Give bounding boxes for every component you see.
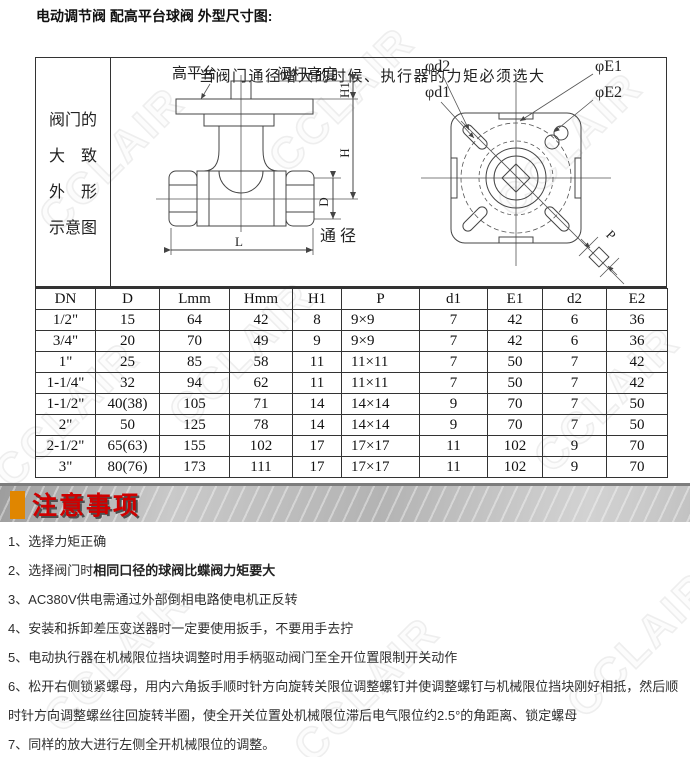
dimension-L-label: L (235, 234, 243, 249)
table-cell: 17×17 (342, 436, 420, 457)
table-cell: 49 (230, 331, 293, 352)
note-number: 5、 (8, 650, 28, 665)
table-cell: 11 (420, 436, 488, 457)
table-cell: 85 (160, 352, 230, 373)
dimension-table: DNDLmmHmmH1Pd1E1d2E2 1/2"15644289×974263… (35, 288, 668, 478)
table-cell: 32 (96, 373, 160, 394)
table-cell: 7 (543, 373, 607, 394)
table-cell: 11 (293, 373, 342, 394)
table-cell: 20 (96, 331, 160, 352)
column-header: Hmm (230, 289, 293, 310)
table-cell: 42 (607, 373, 668, 394)
note-number: 7、 (8, 737, 28, 752)
note-item: 4、安装和拆卸差压变送器时一定要使用扳手，不要用手去拧 (8, 614, 686, 643)
dimension-D-label: D (316, 197, 331, 206)
slot-hole (543, 205, 571, 233)
table-cell: 11×11 (342, 352, 420, 373)
table-cell: 70 (607, 436, 668, 457)
valve-line-art: D L H1 H (111, 58, 666, 286)
table-cell: 2" (36, 415, 96, 436)
table-cell: 14 (293, 415, 342, 436)
drawing-side-caption-line: 示意图 (36, 214, 110, 238)
table-cell: 6 (543, 310, 607, 331)
column-header: E1 (488, 289, 543, 310)
table-cell: 50 (488, 373, 543, 394)
table-row: 2-1/2"65(63)1551021717×1711102970 (36, 436, 668, 457)
table-cell: 7 (543, 352, 607, 373)
table-header-row: DNDLmmHmmH1Pd1E1d2E2 (36, 289, 668, 310)
table-row: 1"2585581111×11750742 (36, 352, 668, 373)
table-cell: 1/2" (36, 310, 96, 331)
table-cell: 7 (420, 373, 488, 394)
table-cell: 50 (96, 415, 160, 436)
column-header: P (342, 289, 420, 310)
note-number: 6、 (8, 679, 28, 694)
drawing-canvas: 当阀门通径增大的时候、执行器的力矩必须选大 (111, 58, 666, 286)
notes-list: 1、选择力矩正确2、选择阀门时相同口径的球阀比蝶阀力矩要大3、AC380V供电需… (8, 527, 686, 757)
slot-hole (461, 123, 489, 151)
table-cell: 102 (488, 457, 543, 478)
drawing-side-caption: 阀门的大 致外 形示意图 (36, 58, 111, 286)
dimension-H1-label: H1 (337, 82, 352, 98)
high-platform-label: 高平台 (172, 62, 217, 83)
table-cell: 9 (420, 394, 488, 415)
stem-height-label: 阀杆高度 (277, 63, 337, 84)
note-text: 选择力矩正确 (28, 534, 106, 549)
note-number: 3、 (8, 592, 28, 607)
table-cell: 14 (293, 394, 342, 415)
phi-E1-label: φE1 (595, 58, 622, 76)
table-cell: 50 (488, 352, 543, 373)
table-cell: 2-1/2" (36, 436, 96, 457)
table-cell: 70 (488, 415, 543, 436)
table-cell: 9 (543, 457, 607, 478)
phi-E2-label: φE2 (595, 84, 622, 102)
P-arrow (608, 266, 617, 275)
phi-d1-leader (441, 102, 474, 138)
table-cell: 173 (160, 457, 230, 478)
table-cell: 70 (160, 331, 230, 352)
bore-label: 通径 (320, 222, 360, 246)
column-header: d2 (543, 289, 607, 310)
table-cell: 78 (230, 415, 293, 436)
drawing-side-caption-line: 大 致 (36, 142, 110, 166)
P-arrow (581, 239, 590, 248)
table-cell: 36 (607, 331, 668, 352)
table-cell: 50 (607, 394, 668, 415)
table-cell: 70 (488, 394, 543, 415)
table-cell: 7 (420, 331, 488, 352)
bolt-hole-d1 (554, 126, 568, 140)
phi-d1-label: φd1 (425, 84, 450, 102)
note-text: AC380V供电需通过外部倒相电路使电机正反转 (28, 592, 297, 607)
table-cell: 64 (160, 310, 230, 331)
table-cell: 102 (488, 436, 543, 457)
note-item: 7、同样的放大进行左侧全开机械限位的调整。 (8, 730, 686, 757)
note-number: 2、 (8, 563, 28, 578)
note-text: 安装和拆卸差压变送器时一定要使用扳手，不要用手去拧 (28, 621, 353, 636)
table-cell: 3/4" (36, 331, 96, 352)
table-cell: 7 (420, 352, 488, 373)
phi-d2-label: φd2 (425, 58, 450, 76)
mounting-bracket (204, 114, 274, 126)
table-cell: 42 (230, 310, 293, 331)
column-header: D (96, 289, 160, 310)
table-row: 1-1/4"3294621111×11750742 (36, 373, 668, 394)
table-cell: 62 (230, 373, 293, 394)
note-number: 4、 (8, 621, 28, 636)
slot-hole (461, 205, 489, 233)
column-header: H1 (293, 289, 342, 310)
table-cell: 125 (160, 415, 230, 436)
left-hex-cap (169, 171, 197, 226)
table-cell: 105 (160, 394, 230, 415)
note-item: 5、电动执行器在机械限位挡块调整时用手柄驱动阀门至全开位置限制开关动作 (8, 643, 686, 672)
table-cell: 14×14 (342, 394, 420, 415)
table-cell: 9 (420, 415, 488, 436)
column-header: d1 (420, 289, 488, 310)
document-page: CCLAIRCCLAIRCCLAIRCCLAIRCCLAIRCCLAIRCCLA… (0, 0, 690, 757)
dimension-H-label: H (337, 148, 352, 157)
table-cell: 58 (230, 352, 293, 373)
table-cell: 7 (420, 310, 488, 331)
table-cell: 15 (96, 310, 160, 331)
high-platform-plate (176, 99, 313, 114)
table-cell: 11×11 (342, 373, 420, 394)
table-cell: 11 (420, 457, 488, 478)
valve-top-view: P (421, 73, 624, 284)
table-cell: 71 (230, 394, 293, 415)
table-cell: 1-1/2" (36, 394, 96, 415)
table-cell: 42 (607, 352, 668, 373)
table-cell: 1" (36, 352, 96, 373)
table-cell: 42 (488, 310, 543, 331)
note-item: 2、选择阀门时相同口径的球阀比蝶阀力矩要大 (8, 556, 686, 585)
table-row: 3"80(76)1731111717×1711102970 (36, 457, 668, 478)
table-cell: 9 (543, 436, 607, 457)
bolt-hole-d1 (545, 135, 559, 149)
note-number: 1、 (8, 534, 28, 549)
table-cell: 50 (607, 415, 668, 436)
dimension-P-label: P (603, 227, 619, 243)
note-text-bold: 相同口径的球阀比蝶阀力矩要大 (93, 563, 275, 578)
table-cell: 17 (293, 436, 342, 457)
drawing-side-caption-line: 阀门的 (36, 106, 110, 130)
page-title: 电动调节阀 配高平台球阀 外型尺寸图: (36, 6, 272, 26)
table-cell: 40(38) (96, 394, 160, 415)
table-row: 2"50125781414×14970750 (36, 415, 668, 436)
table-cell: 102 (230, 436, 293, 457)
valve-body (197, 171, 286, 226)
table-row: 1-1/2"40(38)105711414×14970750 (36, 394, 668, 415)
accent-bar (10, 491, 25, 519)
table-cell: 14×14 (342, 415, 420, 436)
table-cell: 3" (36, 457, 96, 478)
table-cell: 155 (160, 436, 230, 457)
table-cell: 1-1/4" (36, 373, 96, 394)
table-cell: 6 (543, 331, 607, 352)
phi-E2-leader (554, 100, 593, 132)
table-row: 1/2"15644289×9742636 (36, 310, 668, 331)
dimension-figure-frame: 阀门的大 致外 形示意图 当阀门通径增大的时候、执行器的力矩必须选大 (35, 57, 667, 478)
note-text: 松开右侧锁紧螺母，用内六角扳手顺时针方向旋转关限位调整螺钉并使调整螺钉与机械限位… (8, 679, 678, 723)
stem-square-P (589, 247, 609, 267)
column-header: Lmm (160, 289, 230, 310)
valve-outline-drawing: 阀门的大 致外 形示意图 当阀门通径增大的时候、执行器的力矩必须选大 (35, 57, 667, 288)
column-header: E2 (607, 289, 668, 310)
notice-header: 注意事项 (32, 486, 140, 522)
table-cell: 42 (488, 331, 543, 352)
table-cell: 7 (543, 415, 607, 436)
table-cell: 9×9 (342, 310, 420, 331)
note-item: 1、选择力矩正确 (8, 527, 686, 556)
diagonal-centerline (461, 121, 624, 284)
table-cell: 36 (607, 310, 668, 331)
table-cell: 80(76) (96, 457, 160, 478)
table-cell: 25 (96, 352, 160, 373)
notice-banner: 注意事项 (0, 483, 690, 522)
column-header: DN (36, 289, 96, 310)
drawing-side-caption-line: 外 形 (36, 178, 110, 202)
table-cell: 9 (293, 331, 342, 352)
table-cell: 70 (607, 457, 668, 478)
table-cell: 65(63) (96, 436, 160, 457)
note-text: 同样的放大进行左侧全开机械限位的调整。 (28, 737, 275, 752)
table-cell: 94 (160, 373, 230, 394)
table-cell: 17 (293, 457, 342, 478)
table-row: 3/4"20704999×9742636 (36, 331, 668, 352)
table-cell: 8 (293, 310, 342, 331)
table-cell: 17×17 (342, 457, 420, 478)
note-item: 6、松开右侧锁紧螺母，用内六角扳手顺时针方向旋转关限位调整螺钉并使调整螺钉与机械… (8, 672, 686, 730)
table-cell: 111 (230, 457, 293, 478)
right-hex-cap (286, 171, 314, 226)
table-cell: 7 (543, 394, 607, 415)
note-text: 选择阀门时 (28, 563, 93, 578)
table-cell: 11 (293, 352, 342, 373)
table-cell: 9×9 (342, 331, 420, 352)
note-item: 3、AC380V供电需通过外部倒相电路使电机正反转 (8, 585, 686, 614)
note-text: 电动执行器在机械限位挡块调整时用手柄驱动阀门至全开位置限制开关动作 (28, 650, 457, 665)
phi-E1-leader (520, 74, 593, 121)
high-platform-leader (201, 84, 210, 99)
